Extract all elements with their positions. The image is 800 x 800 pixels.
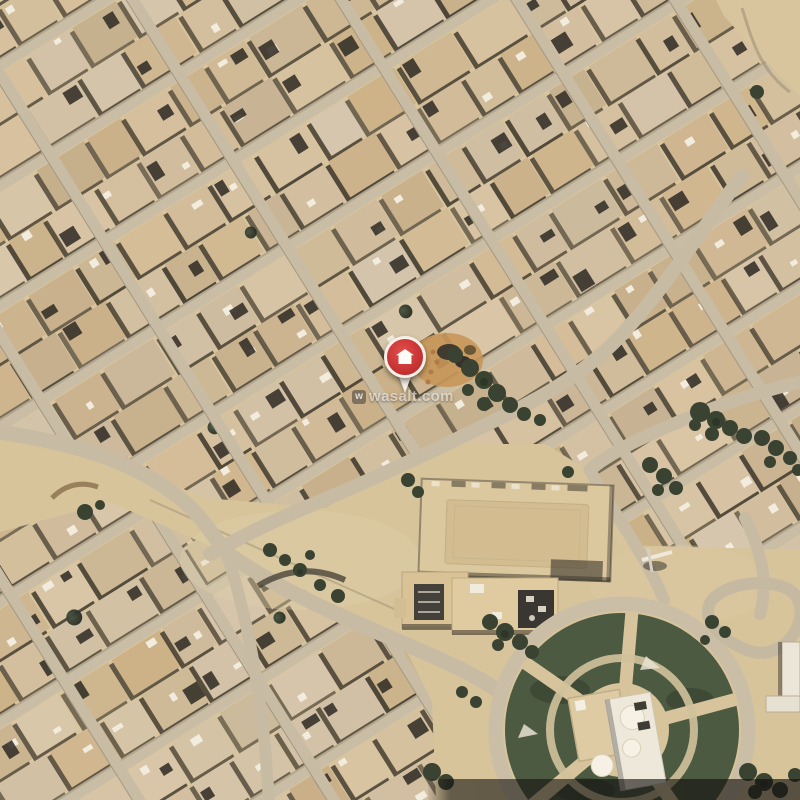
villa (660, 653, 722, 713)
villa (580, 694, 654, 762)
villa (636, 669, 694, 727)
villa (455, 660, 515, 719)
loop-road (708, 583, 800, 653)
villa (415, 614, 485, 680)
villa (703, 626, 765, 686)
villa (543, 597, 616, 664)
villa (406, 505, 466, 564)
villa (608, 618, 672, 679)
villa (466, 587, 529, 648)
villa (746, 597, 800, 660)
tree-icon (447, 601, 469, 623)
villa (306, 513, 369, 574)
villa (716, 686, 774, 744)
villa (705, 681, 762, 739)
villa (19, 453, 76, 510)
villa (384, 533, 441, 591)
map-canvas[interactable]: w wasalt.com (0, 0, 800, 800)
villa (565, 708, 634, 773)
roundabout-park (496, 604, 748, 800)
villa (509, 556, 578, 621)
villa (499, 630, 564, 692)
villa (717, 610, 788, 676)
villa (555, 538, 625, 604)
villa (743, 717, 800, 780)
villa (468, 474, 536, 538)
villa (407, 564, 480, 631)
villa (431, 552, 496, 614)
villa (364, 531, 426, 591)
villa (561, 647, 624, 708)
villa (566, 658, 627, 718)
villa (476, 524, 541, 586)
watermark-logo-icon: w (352, 390, 366, 404)
villa (518, 570, 574, 627)
villa (790, 686, 800, 750)
location-pin[interactable] (384, 336, 426, 392)
villa (385, 580, 451, 643)
villa (0, 434, 22, 497)
villa (524, 619, 585, 679)
villa (673, 642, 737, 704)
villa (427, 625, 487, 684)
villa (743, 648, 800, 715)
villa (519, 675, 580, 735)
school-compound (394, 479, 614, 635)
villa (597, 564, 669, 630)
villa (567, 585, 640, 652)
villa (474, 702, 536, 762)
villa (609, 623, 682, 690)
bottom-overlay-band (428, 779, 800, 800)
villa (423, 505, 485, 566)
villa (472, 646, 542, 712)
villa (758, 654, 800, 718)
villa (788, 686, 800, 754)
villa (621, 556, 685, 618)
villa (615, 681, 679, 743)
villa (768, 578, 800, 644)
villa (523, 495, 587, 557)
white-building (766, 642, 800, 712)
villa (659, 711, 733, 779)
villa (736, 722, 800, 787)
villa (652, 590, 716, 651)
villa (664, 599, 720, 656)
villa (539, 483, 609, 549)
villa (503, 515, 558, 571)
villa (664, 705, 724, 764)
villa (510, 684, 584, 752)
villa (462, 538, 521, 597)
villa (700, 554, 773, 622)
villa (702, 567, 772, 632)
villa (447, 477, 512, 539)
villa (475, 718, 530, 774)
villa (793, 570, 800, 631)
villa (469, 595, 535, 658)
